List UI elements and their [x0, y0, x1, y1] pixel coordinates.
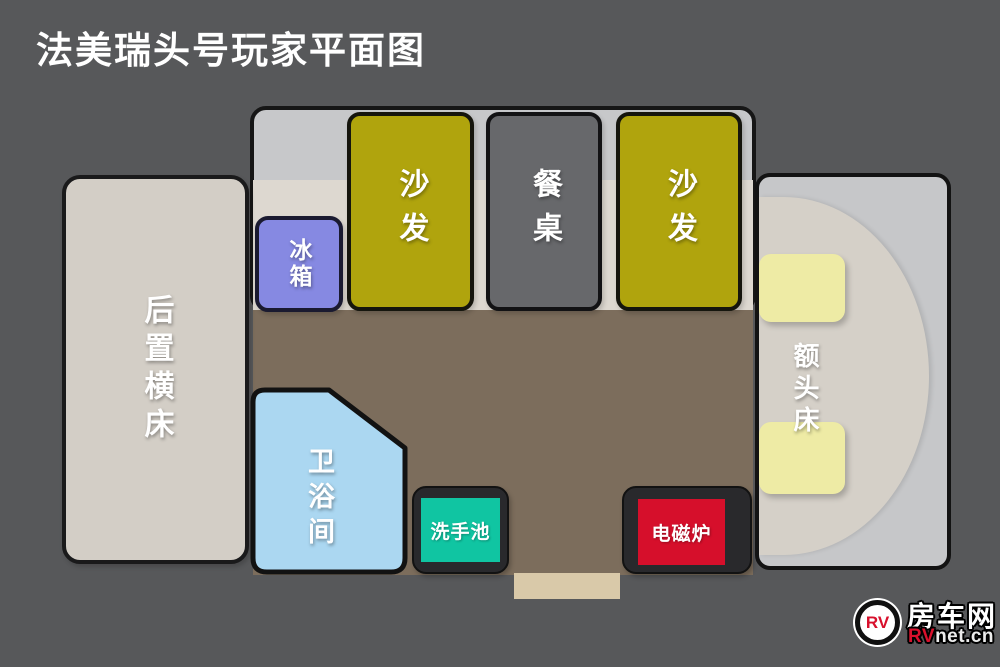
dining-table: 餐桌 — [486, 112, 602, 311]
bed-cushion-1 — [759, 254, 845, 322]
sofa-right: 沙发 — [616, 112, 742, 311]
dining-table-label: 餐桌 — [522, 168, 566, 256]
floorplan-canvas: 法美瑞头号玩家平面图 后置横床 沙发 餐桌 沙发 冰箱 卫浴间 洗手池 电磁炉 — [0, 0, 1000, 667]
sink: 洗手池 — [421, 498, 500, 562]
cooker-counter-frame: 电磁炉 — [622, 486, 752, 574]
entry-step — [514, 573, 620, 599]
sofa-left-label: 沙发 — [389, 168, 433, 256]
logo-site-url-suffix: net.cn — [935, 626, 994, 647]
induction-cooker: 电磁炉 — [638, 499, 725, 565]
logo-site-url: RVnet.cn — [908, 626, 994, 648]
logo-site-url-prefix: RV — [908, 626, 935, 647]
induction-cooker-label: 电磁炉 — [651, 519, 711, 546]
sink-label: 洗手池 — [430, 517, 490, 544]
sink-counter-frame: 洗手池 — [412, 486, 509, 574]
page-title: 法美瑞头号玩家平面图 — [36, 20, 426, 74]
rv-logo-badge: RV — [855, 600, 900, 645]
rear-bed-label: 后置横床 — [134, 294, 178, 446]
sofa-left: 沙发 — [347, 112, 474, 311]
front-bed-label: 额头床 — [787, 325, 824, 455]
fridge: 冰箱 — [255, 216, 343, 312]
fridge-label: 冰箱 — [282, 238, 316, 290]
front-bed: 额头床 — [755, 173, 951, 570]
rear-bed: 后置横床 — [62, 175, 249, 564]
front-bed-mattress — [759, 197, 929, 555]
rv-logo-badge-text: RV — [866, 613, 889, 633]
sofa-right-label: 沙发 — [657, 168, 701, 256]
bathroom-label: 卫浴间 — [300, 424, 339, 574]
